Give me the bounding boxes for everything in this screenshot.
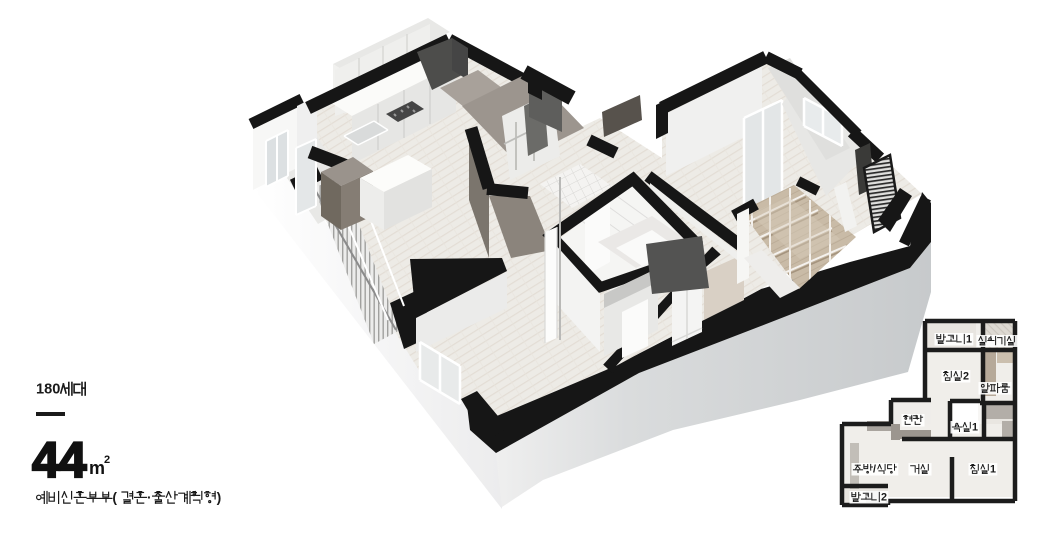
svg-text:1: 1 — [972, 422, 978, 434]
svg-text:1: 1 — [990, 464, 996, 476]
svg-text:2: 2 — [104, 454, 110, 466]
svg-text:1: 1 — [966, 334, 972, 346]
svg-text:·: · — [147, 489, 152, 505]
svg-text:2: 2 — [963, 371, 969, 383]
svg-text:2: 2 — [881, 492, 887, 504]
svg-text:): ) — [217, 489, 222, 505]
svg-text:44: 44 — [32, 432, 87, 488]
svg-text:180: 180 — [36, 382, 60, 398]
svg-text:m: m — [89, 458, 105, 478]
svg-text:/: / — [873, 464, 876, 476]
svg-text:(: ( — [112, 489, 117, 505]
